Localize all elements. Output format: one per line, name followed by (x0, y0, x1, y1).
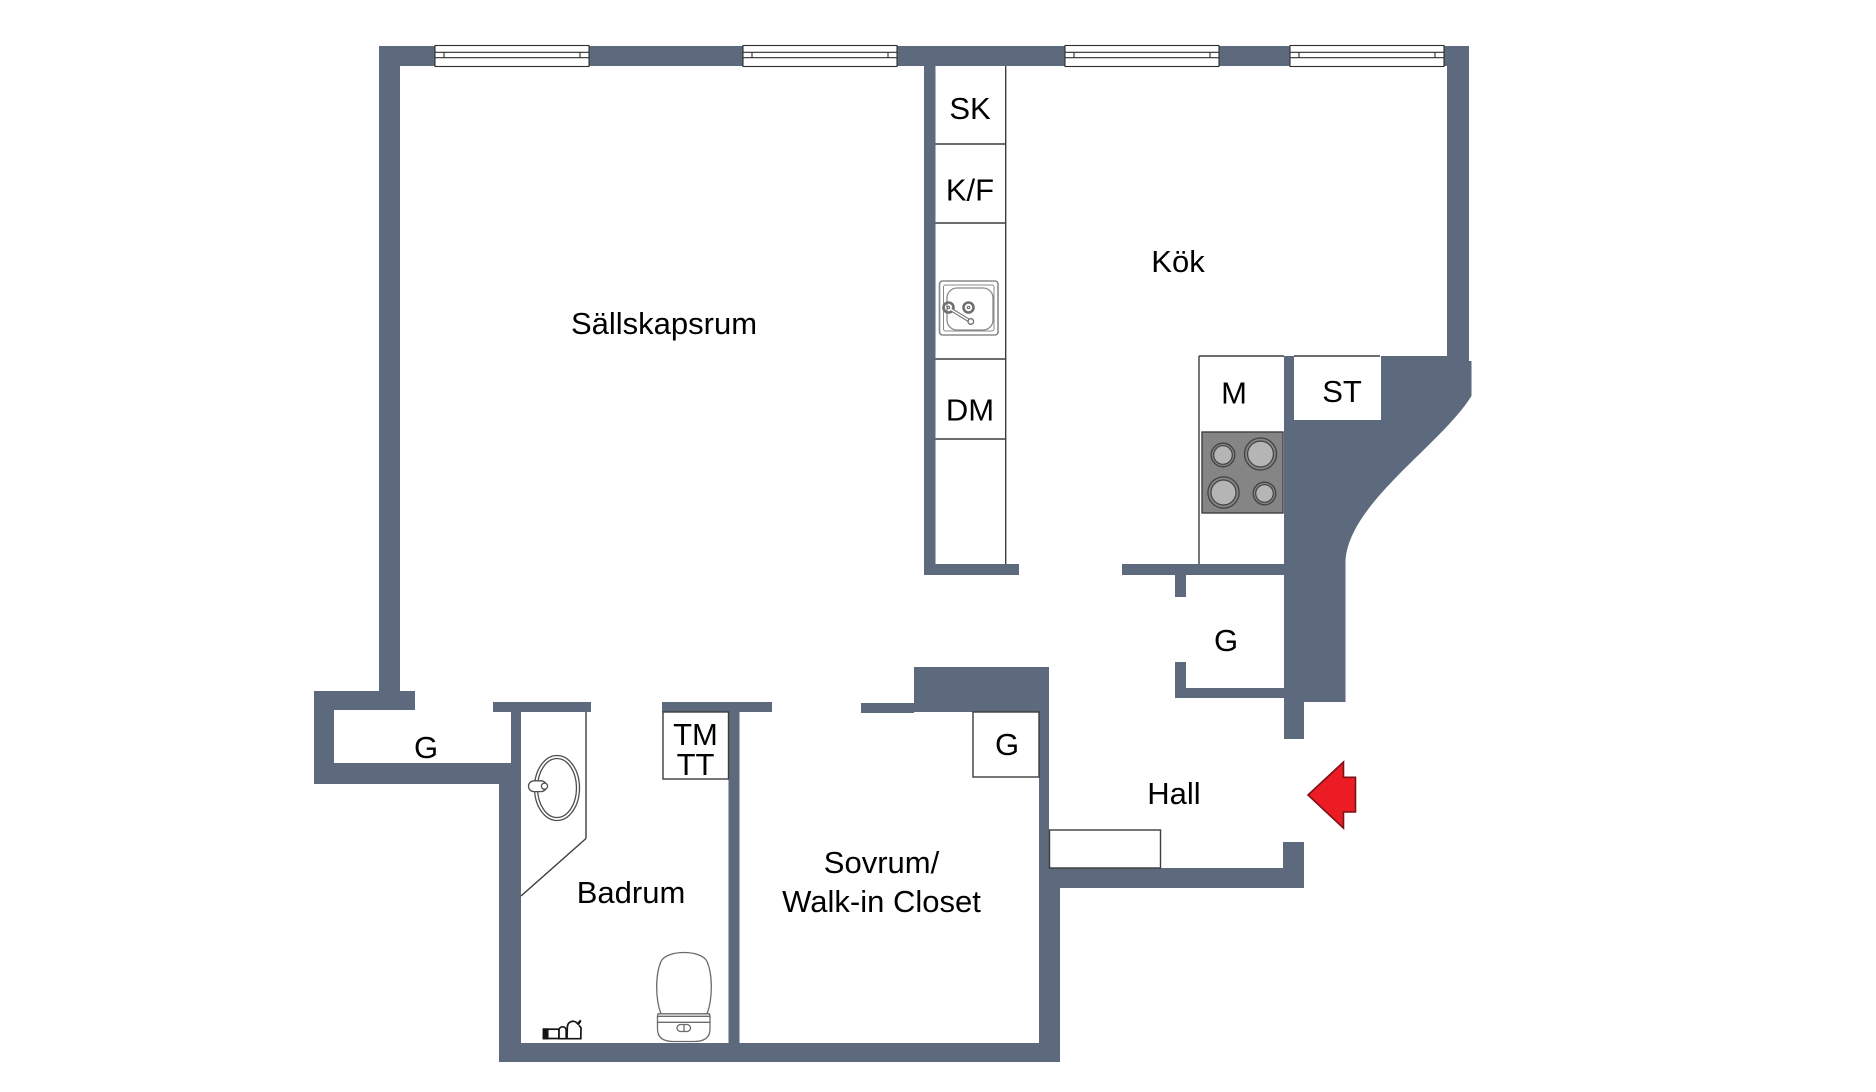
svg-text:Kök: Kök (1151, 244, 1205, 279)
svg-text:Hall: Hall (1147, 776, 1200, 811)
svg-text:G: G (414, 730, 438, 765)
svg-text:Badrum: Badrum (577, 875, 686, 910)
svg-text:M: M (1221, 375, 1247, 410)
svg-text:G: G (1214, 623, 1238, 658)
svg-text:DM: DM (946, 393, 994, 428)
svg-text:Sällskapsrum: Sällskapsrum (571, 306, 757, 341)
svg-text:TT: TT (677, 747, 715, 782)
svg-text:Walk-in Closet: Walk-in Closet (782, 884, 981, 919)
svg-text:SK: SK (949, 91, 991, 126)
svg-text:K/F: K/F (946, 173, 994, 208)
svg-text:G: G (995, 727, 1019, 762)
svg-text:Sovrum/: Sovrum/ (824, 845, 940, 880)
svg-text:ST: ST (1322, 374, 1362, 409)
